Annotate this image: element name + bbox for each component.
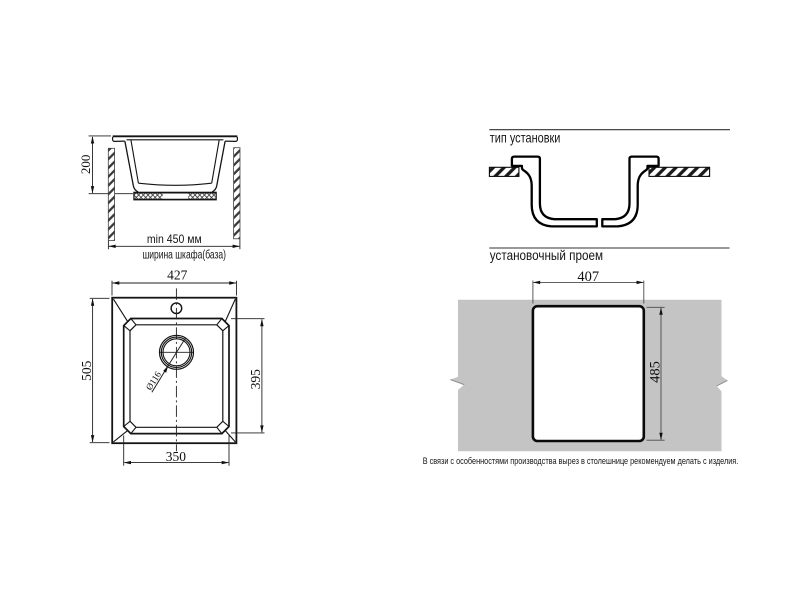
svg-text:В связи с особенностями произв: В связи с особенностями производства выр… (423, 456, 739, 467)
svg-text:ширина шкафа(база): ширина шкафа(база) (142, 247, 226, 261)
svg-text:200: 200 (78, 155, 93, 175)
svg-text:505: 505 (79, 360, 94, 381)
svg-text:407: 407 (577, 269, 599, 285)
svg-text:395: 395 (248, 369, 263, 390)
svg-text:427: 427 (167, 267, 188, 282)
svg-text:min 450 мм: min 450 мм (147, 233, 202, 246)
svg-text:485: 485 (647, 361, 663, 383)
svg-text:тип установки: тип установки (490, 129, 561, 145)
svg-text:350: 350 (166, 449, 187, 464)
svg-text:установочный проем: установочный проем (490, 247, 603, 263)
